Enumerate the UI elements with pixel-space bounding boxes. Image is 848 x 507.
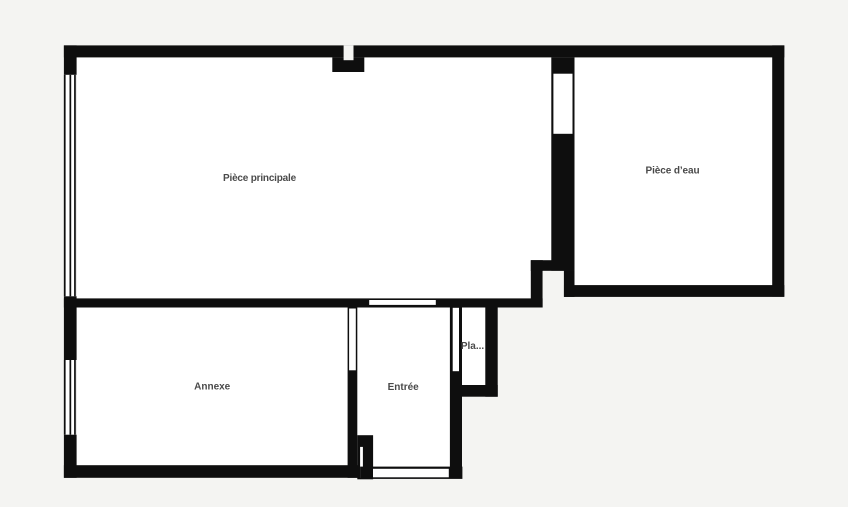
svg-text:Pièce d’eau: Pièce d’eau [646,165,700,176]
svg-text:Entrée: Entrée [388,382,420,393]
svg-text:Pla...: Pla... [461,341,485,352]
svg-text:Pièce principale: Pièce principale [223,173,297,184]
svg-text:Annexe: Annexe [194,382,231,393]
